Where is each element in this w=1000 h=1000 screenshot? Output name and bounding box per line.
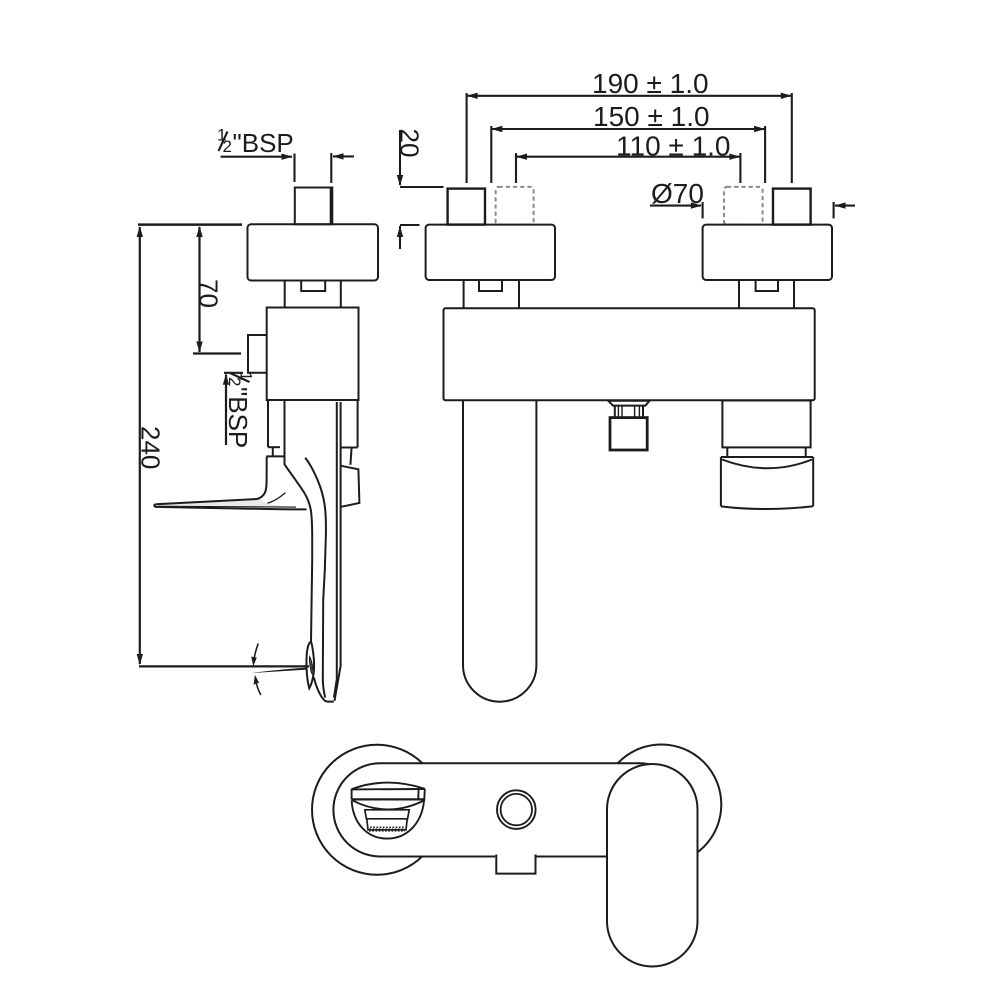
- svg-text:2: 2: [223, 137, 232, 156]
- svg-text:190 ± 1.0: 190 ± 1.0: [592, 68, 709, 99]
- svg-text:"BSP: "BSP: [223, 387, 253, 448]
- svg-text:150 ± 1.0: 150 ± 1.0: [593, 101, 710, 132]
- svg-text:70: 70: [194, 279, 224, 308]
- svg-text:2: 2: [225, 377, 244, 386]
- svg-text:20: 20: [395, 129, 425, 158]
- svg-text:240: 240: [136, 426, 166, 469]
- svg-text:110 ± 1.0: 110 ± 1.0: [616, 131, 731, 162]
- svg-text:"BSP: "BSP: [233, 128, 294, 158]
- svg-text:Ø70: Ø70: [651, 178, 704, 209]
